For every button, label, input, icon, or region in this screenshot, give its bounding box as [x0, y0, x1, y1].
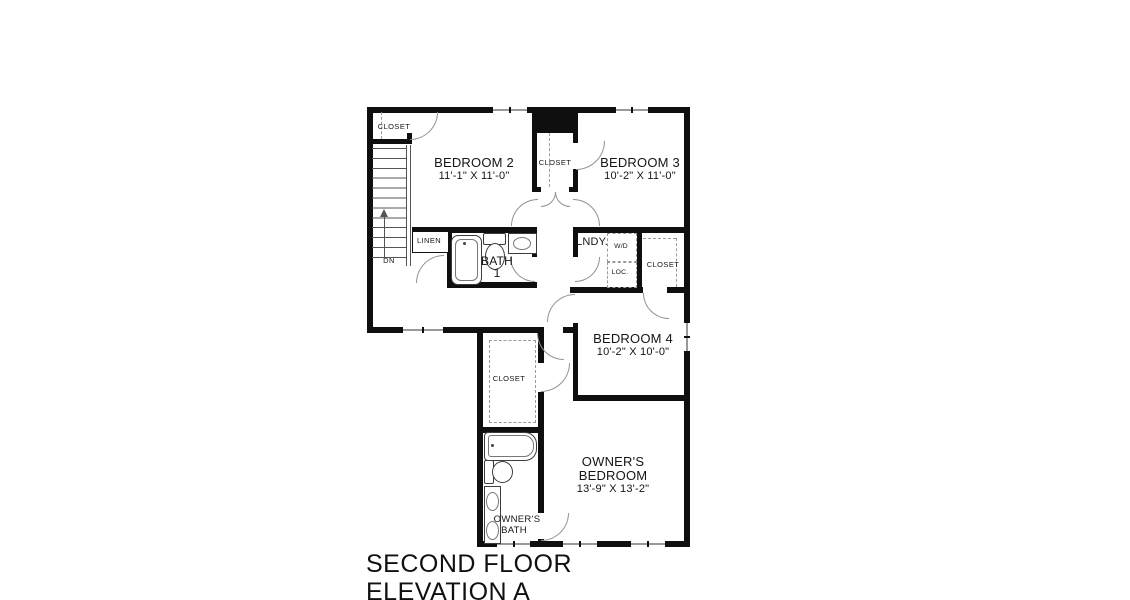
- wall-segment: [477, 333, 483, 547]
- door-arc: [573, 199, 600, 226]
- toilet-bowl: [492, 461, 513, 483]
- bathtub-inner: [455, 239, 478, 281]
- door-arc: [541, 513, 569, 541]
- door-arc: [541, 192, 556, 207]
- room-label-owners-bath-2: BATH: [501, 525, 527, 536]
- room-dims-bedroom3: 10'-2" X 11'-0": [604, 170, 676, 182]
- room-label-owners-bath-1: OWNER'S: [494, 514, 541, 525]
- wall-segment: [443, 327, 544, 333]
- wall-segment: [667, 287, 690, 293]
- door-arc: [511, 199, 538, 226]
- laundry-loc-label: LOC.: [612, 269, 629, 276]
- door-arc: [643, 293, 669, 319]
- plan-title-line1: SECOND FLOOR: [366, 550, 572, 578]
- door-arc: [555, 192, 570, 207]
- closet-label-hall: CLOSET: [539, 158, 571, 167]
- room-label-bedroom3: BEDROOM 3: [600, 155, 680, 170]
- room-label-owners-bedroom-1: OWNER'S: [582, 454, 644, 469]
- stairs: [372, 148, 406, 262]
- plan-title-line2: ELEVATION A: [366, 578, 572, 600]
- chase-block: [532, 112, 578, 133]
- wall-segment: [530, 541, 563, 547]
- window: [563, 541, 597, 547]
- door-arc: [547, 294, 575, 322]
- stairs-dn-label: DN: [383, 256, 395, 265]
- wall-segment: [538, 392, 544, 427]
- door-arc: [510, 257, 535, 282]
- room-label-bath1-number: 1: [494, 266, 501, 280]
- stair-arrow-head: [380, 209, 388, 217]
- linen-label: LINEN: [417, 236, 441, 245]
- sink-basin: [486, 492, 499, 511]
- plan-title: SECOND FLOOR ELEVATION A: [366, 550, 572, 600]
- window: [493, 107, 527, 113]
- wall-segment: [637, 233, 642, 287]
- door-arc: [541, 363, 570, 392]
- wall-segment: [538, 433, 544, 513]
- closet-label-bedroom2: CLOSET: [378, 122, 410, 131]
- floor-plan-canvas: CLOSET BEDROOM 2 11'-1" X 11'-0" CLOSET …: [0, 0, 1130, 600]
- window: [631, 541, 665, 547]
- wall-segment: [665, 541, 690, 547]
- wall-segment: [367, 327, 403, 333]
- bathtub-inner: [488, 435, 534, 457]
- stair-stringer: [406, 145, 407, 266]
- room-dims-bedroom2: 11'-1" X 11'-0": [439, 170, 510, 182]
- room-label-bedroom2: BEDROOM 2: [434, 155, 514, 170]
- room-dims-bedroom4: 10'-2" X 10'-0": [597, 346, 670, 358]
- stair-arrow-shaft: [384, 216, 385, 258]
- window: [497, 541, 530, 547]
- door-arc: [416, 255, 444, 283]
- wall-segment: [597, 541, 631, 547]
- room-label-bedroom4: BEDROOM 4: [593, 331, 673, 346]
- window: [403, 327, 443, 333]
- laundry-label: LNDY.: [576, 236, 608, 248]
- washer-dryer-label: W/D: [614, 243, 628, 250]
- wall-segment: [569, 187, 578, 192]
- sink-basin: [513, 237, 531, 250]
- stair-stringer: [410, 145, 411, 266]
- wall-segment: [573, 395, 684, 401]
- wall-segment: [573, 323, 578, 400]
- tub-faucet: [463, 242, 466, 245]
- window: [616, 107, 648, 113]
- window: [684, 323, 690, 351]
- closet-label-bedroom4: CLOSET: [647, 260, 679, 269]
- closet-shelf: [643, 238, 676, 239]
- wall-segment: [532, 133, 537, 192]
- wall-segment: [367, 139, 412, 144]
- room-dims-owners-bedroom: 13'-9" X 13'-2": [577, 483, 650, 495]
- room-label-owners-bedroom-2: BEDROOM: [579, 468, 648, 483]
- tub-faucet: [491, 444, 494, 447]
- door-arc: [410, 112, 438, 140]
- door-arc: [575, 257, 600, 282]
- wall-segment: [684, 351, 690, 547]
- closet-label-owners: CLOSET: [493, 374, 525, 383]
- wall-segment: [532, 187, 541, 192]
